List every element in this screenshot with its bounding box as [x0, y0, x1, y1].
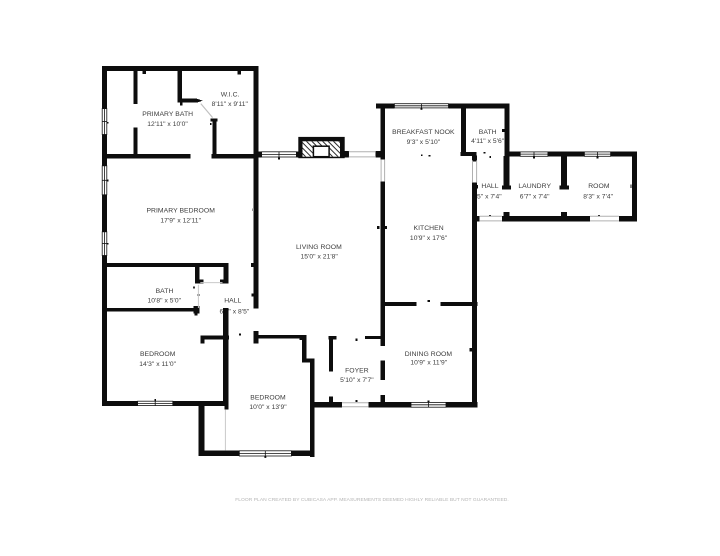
svg-text:10'9" x 11'9": 10'9" x 11'9": [410, 360, 447, 367]
svg-text:8'11" x 9'11": 8'11" x 9'11": [212, 101, 249, 108]
svg-text:W.I.C.: W.I.C.: [221, 92, 240, 99]
svg-text:12'11" x 10'0": 12'11" x 10'0": [147, 121, 188, 128]
svg-text:BEDROOM: BEDROOM: [250, 394, 286, 401]
svg-text:4'11" x 5'6": 4'11" x 5'6": [471, 138, 505, 145]
svg-text:8'3" x 7'4": 8'3" x 7'4": [583, 194, 613, 201]
svg-text:15'0" x 21'8": 15'0" x 21'8": [301, 253, 339, 260]
svg-text:10'0" x 13'9": 10'0" x 13'9": [249, 404, 287, 411]
svg-text:10'9" x 17'6": 10'9" x 17'6": [410, 235, 448, 242]
svg-text:DINING ROOM: DINING ROOM: [405, 351, 453, 358]
svg-text:BREAKFAST NOOK: BREAKFAST NOOK: [392, 129, 455, 136]
svg-text:PRIMARY BEDROOM: PRIMARY BEDROOM: [146, 208, 215, 215]
svg-text:PRIMARY BATH: PRIMARY BATH: [142, 111, 193, 118]
svg-text:14'3" x 11'0": 14'3" x 11'0": [139, 361, 176, 368]
svg-text:10'8" x 5'0": 10'8" x 5'0": [148, 298, 182, 305]
svg-text:BATH: BATH: [479, 129, 497, 136]
svg-text:HALL: HALL: [224, 297, 241, 304]
svg-text:6'7" x 7'4": 6'7" x 7'4": [520, 194, 550, 201]
svg-text:HALL: HALL: [481, 183, 498, 190]
svg-text:BATH: BATH: [156, 288, 174, 295]
svg-text:FLOOR PLAN CREATED BY CUBICASA: FLOOR PLAN CREATED BY CUBICASA APP. MEAS…: [235, 497, 509, 503]
svg-text:BEDROOM: BEDROOM: [140, 351, 176, 358]
svg-text:LAUNDRY: LAUNDRY: [518, 183, 551, 190]
svg-text:FOYER: FOYER: [345, 368, 369, 375]
svg-text:17'9" x 12'11": 17'9" x 12'11": [160, 218, 201, 225]
svg-text:LIVING ROOM: LIVING ROOM: [296, 244, 342, 251]
svg-text:9'3" x 5'10": 9'3" x 5'10": [407, 139, 441, 146]
svg-text:KITCHEN: KITCHEN: [414, 225, 444, 232]
svg-text:ROOM: ROOM: [588, 183, 610, 190]
svg-text:5'10" x 7'7": 5'10" x 7'7": [340, 377, 374, 384]
